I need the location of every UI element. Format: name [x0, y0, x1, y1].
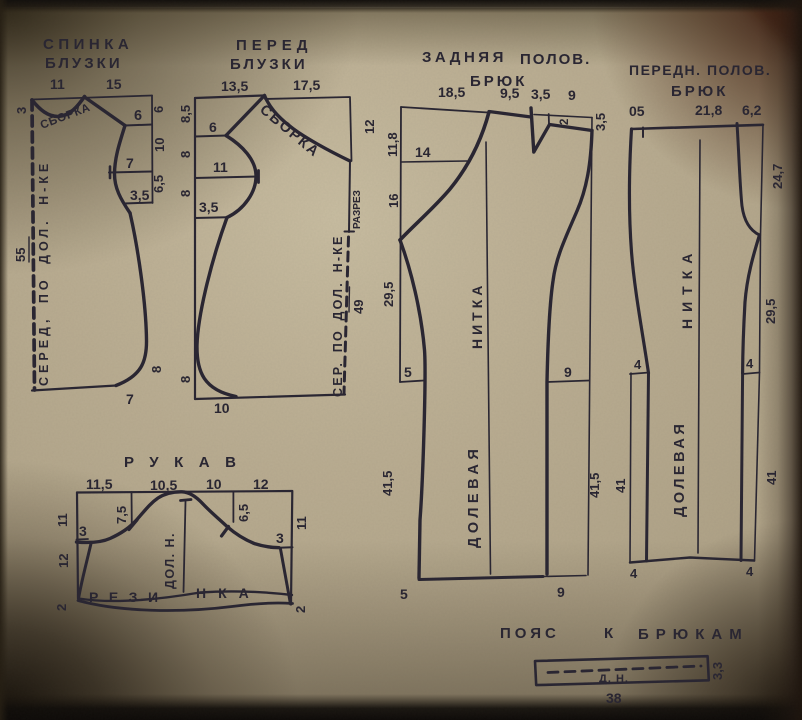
svg-text:РУКАВ: РУКАВ [124, 454, 251, 471]
svg-text:12: 12 [362, 120, 377, 134]
svg-text:8: 8 [178, 151, 193, 158]
svg-text:РЕЗИ: РЕЗИ [89, 589, 169, 605]
svg-text:17,5: 17,5 [293, 77, 320, 93]
svg-text:8: 8 [178, 376, 193, 383]
svg-text:3,5: 3,5 [130, 187, 150, 203]
svg-text:10: 10 [214, 400, 230, 416]
svg-text:4: 4 [746, 564, 754, 579]
svg-text:11,8: 11,8 [385, 132, 400, 157]
svg-text:9: 9 [568, 87, 576, 103]
svg-text:9,5: 9,5 [500, 85, 520, 101]
svg-text:БРЮК: БРЮК [671, 83, 728, 100]
svg-text:ПОЛОВ.: ПОЛОВ. [520, 51, 591, 68]
svg-text:3,3: 3,3 [710, 662, 725, 680]
svg-text:3: 3 [276, 530, 284, 546]
svg-text:3,5: 3,5 [593, 113, 608, 131]
svg-text:ПЕРЕДН. ПОЛОВ.: ПЕРЕДН. ПОЛОВ. [629, 62, 771, 78]
svg-text:СЕР. ПО ДОЛ. Н-КЕ: СЕР. ПО ДОЛ. Н-КЕ [331, 234, 345, 397]
svg-text:8: 8 [149, 366, 164, 373]
svg-text:4: 4 [746, 356, 754, 371]
svg-text:12: 12 [253, 476, 269, 492]
svg-text:18,5: 18,5 [438, 84, 465, 100]
svg-text:2: 2 [54, 604, 69, 611]
svg-text:6: 6 [134, 108, 142, 124]
svg-text:15: 15 [106, 76, 122, 92]
svg-text:ЗАДНЯЯ: ЗАДНЯЯ [422, 49, 507, 66]
svg-text:3,5: 3,5 [531, 86, 551, 102]
svg-text:6,5: 6,5 [151, 175, 166, 193]
svg-text:41: 41 [764, 471, 779, 485]
svg-text:6,5: 6,5 [236, 504, 251, 522]
svg-text:11: 11 [294, 516, 309, 530]
svg-text:11: 11 [50, 76, 65, 92]
svg-text:НИТКА: НИТКА [469, 282, 485, 349]
svg-text:12: 12 [56, 554, 71, 568]
svg-text:К: К [604, 625, 614, 642]
svg-text:НИТКА: НИТКА [679, 247, 695, 329]
svg-text:ПОЯС: ПОЯС [500, 625, 560, 642]
svg-text:ПЕРЕД: ПЕРЕД [236, 37, 312, 54]
svg-text:3,5: 3,5 [199, 199, 219, 215]
svg-text:БЛУЗКИ: БЛУЗКИ [45, 55, 123, 72]
svg-text:24,7: 24,7 [770, 164, 785, 189]
svg-text:41,5: 41,5 [380, 471, 395, 496]
svg-text:ДОЛЕВАЯ: ДОЛЕВАЯ [672, 421, 688, 517]
svg-text:55: 55 [13, 248, 28, 262]
svg-text:21,8: 21,8 [695, 102, 722, 118]
svg-text:16: 16 [386, 194, 401, 208]
svg-text:29,5: 29,5 [381, 282, 396, 307]
svg-text:6,2: 6,2 [742, 102, 762, 118]
svg-text:7: 7 [126, 391, 134, 407]
svg-text:4: 4 [630, 566, 638, 581]
svg-text:7: 7 [126, 155, 134, 171]
svg-text:2: 2 [293, 606, 308, 613]
svg-text:Д. Н.: Д. Н. [599, 673, 629, 685]
svg-text:БЛУЗКИ: БЛУЗКИ [230, 56, 308, 73]
svg-text:41,5: 41,5 [587, 473, 602, 498]
svg-text:7,5: 7,5 [114, 506, 129, 524]
svg-text:СЕРЕД, ПО ДОЛ. Н-КЕ: СЕРЕД, ПО ДОЛ. Н-КЕ [37, 160, 51, 386]
svg-text:05: 05 [629, 103, 645, 119]
svg-text:6: 6 [151, 106, 166, 113]
svg-text:13,5: 13,5 [221, 78, 248, 94]
svg-text:2: 2 [559, 119, 571, 125]
svg-text:8: 8 [178, 190, 193, 197]
svg-text:38: 38 [606, 690, 622, 706]
svg-text:5: 5 [404, 364, 412, 380]
svg-text:ДОЛЕВАЯ: ДОЛЕВАЯ [466, 445, 482, 548]
svg-text:БРЮКАМ: БРЮКАМ [638, 626, 749, 643]
svg-text:РАЗРЕЗ: РАЗРЕЗ [352, 190, 363, 229]
svg-text:ДОЛ. Н.: ДОЛ. Н. [163, 532, 177, 589]
svg-text:3: 3 [79, 523, 87, 539]
svg-text:НКА: НКА [196, 585, 261, 601]
svg-text:9: 9 [564, 364, 572, 380]
svg-text:11: 11 [55, 513, 70, 527]
svg-text:29,5: 29,5 [763, 299, 778, 324]
svg-text:11,5: 11,5 [86, 476, 113, 492]
svg-text:8,5: 8,5 [178, 105, 193, 123]
svg-text:6: 6 [209, 119, 217, 135]
svg-text:4: 4 [634, 357, 642, 372]
svg-text:41: 41 [613, 479, 628, 493]
svg-text:10,5: 10,5 [150, 477, 177, 493]
svg-text:СПИНКА: СПИНКА [43, 36, 133, 53]
svg-text:49: 49 [351, 300, 366, 314]
svg-text:14: 14 [415, 144, 431, 160]
svg-text:10: 10 [206, 476, 222, 492]
svg-text:3: 3 [14, 107, 29, 114]
svg-text:10: 10 [152, 138, 167, 152]
svg-text:9: 9 [557, 584, 565, 600]
svg-text:5: 5 [400, 586, 408, 602]
svg-text:11: 11 [213, 159, 228, 175]
